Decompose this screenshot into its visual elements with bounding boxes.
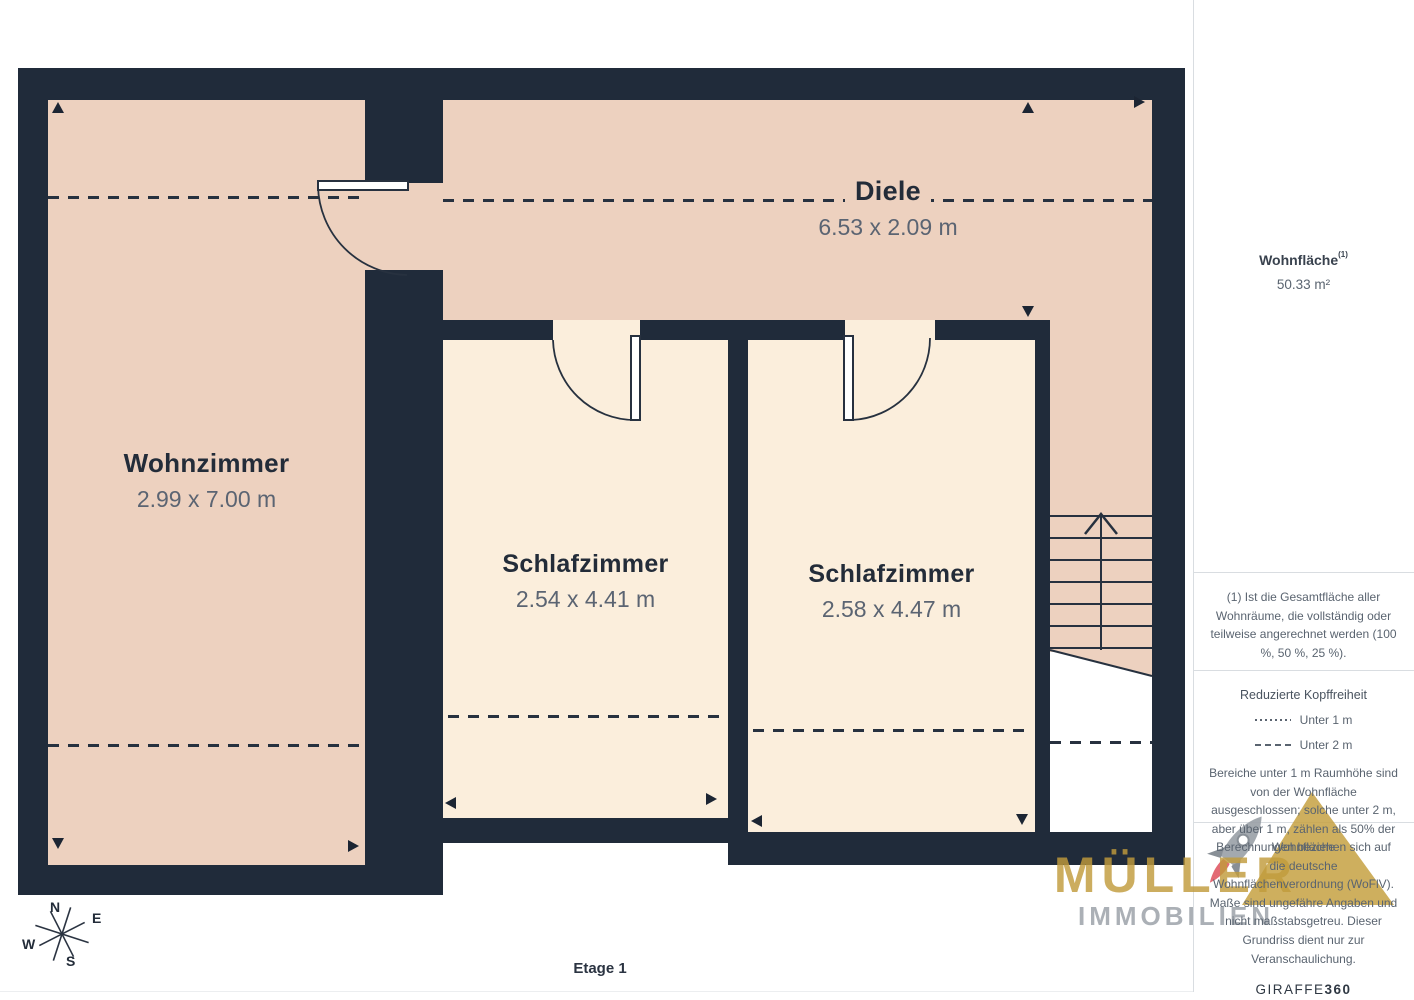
dimension-marker-right-icon: [1134, 96, 1145, 108]
dimension-marker-down-icon: [1016, 814, 1028, 825]
room-fill-diele: [443, 100, 1152, 320]
room-fill-wohnzimmer: [48, 100, 365, 865]
dimension-marker-right-icon: [706, 793, 717, 805]
room-fill-schlafzimmer-1: [443, 340, 728, 818]
wall-bottom-schlafzimmer-1: [443, 818, 733, 843]
room-fill-schlafzimmer-2: [748, 340, 1035, 832]
footnote-text: (1) Ist die Gesamtfläche aller Wohnräume…: [1208, 588, 1399, 662]
doorway-fill-schlafzimmer-1: [553, 320, 640, 340]
legend-title: Reduzierte Kopffreiheit: [1206, 688, 1401, 702]
wall-diele-bottom-b: [640, 320, 845, 340]
headroom-dash-diele: [443, 199, 1152, 202]
doorway-fill-schlafzimmer-2: [845, 320, 935, 340]
wall-bedroom-separator: [728, 340, 748, 832]
wall-bottom-wohnzimmer: [18, 865, 443, 895]
dashed-line-icon: [1255, 744, 1291, 746]
wall-bottom-right: [728, 832, 1185, 865]
compass-icon: N E W S: [22, 899, 101, 970]
legend-item-under-2m: Unter 2 m: [1206, 738, 1401, 752]
area-label: Wohnfläche(1): [1193, 252, 1414, 268]
dimension-marker-down-icon: [1022, 306, 1034, 317]
wall-diele-bottom-c: [935, 320, 1050, 340]
sidebar-legend-section: Reduzierte Kopffreiheit Unter 1 m Unter …: [1193, 688, 1414, 857]
headroom-dash-schlafzimmer-2: [753, 729, 1030, 732]
footnote-marker: (1): [1338, 250, 1348, 259]
headroom-dash-wohnzimmer-top: [48, 196, 365, 199]
legend-item-under-1m: Unter 1 m: [1206, 713, 1401, 727]
headroom-dash-wohnzimmer-bottom: [48, 744, 365, 747]
floor-label: Etage 1: [540, 960, 660, 977]
dimension-marker-left-icon: [445, 797, 456, 809]
dimension-marker-up-icon: [1022, 102, 1034, 113]
sidebar-disclaimer-section: Berechnungen beziehen sich auf die deuts…: [1193, 838, 1414, 997]
headroom-dash-stair: [1050, 741, 1152, 744]
disclaimer-text: Berechnungen beziehen sich auf die deuts…: [1207, 838, 1400, 968]
dimension-marker-down-icon: [52, 838, 64, 849]
wall-stairwell: [1035, 340, 1050, 835]
sidebar-footnote-section: (1) Ist die Gesamtfläche aller Wohnräume…: [1193, 588, 1414, 662]
floorplan-page: { "floorplan": { "floor_label": "Etage 1…: [0, 0, 1414, 1000]
dimension-marker-left-icon: [751, 815, 762, 827]
area-value: 50.33 m²: [1193, 277, 1414, 292]
wall-mid-main: [365, 270, 443, 865]
sidebar-area-section: Wohnfläche(1) 50.33 m²: [1193, 252, 1414, 292]
doorway-fill-wohnzimmer: [365, 183, 443, 270]
headroom-dash-schlafzimmer-1: [448, 715, 723, 718]
sidebar: Wohnfläche(1) 50.33 m² (1) Ist die Gesam…: [1193, 0, 1414, 992]
wall-top: [18, 68, 1185, 100]
wall-right: [1152, 68, 1185, 865]
stair-landing-fill: [1050, 320, 1152, 652]
compass-e: E: [92, 910, 101, 926]
compass-n: N: [50, 899, 60, 915]
wall-mid-upper: [365, 100, 443, 183]
compass-s: S: [66, 953, 75, 969]
dotted-line-icon: [1255, 719, 1291, 721]
wall-diele-bottom-a: [443, 320, 553, 340]
dimension-marker-right-icon: [348, 840, 359, 852]
giraffe360-brand: GIRAFFE360: [1207, 982, 1400, 997]
dimension-marker-up-icon: [52, 102, 64, 113]
compass-w: W: [22, 936, 36, 952]
wall-left: [18, 68, 48, 895]
